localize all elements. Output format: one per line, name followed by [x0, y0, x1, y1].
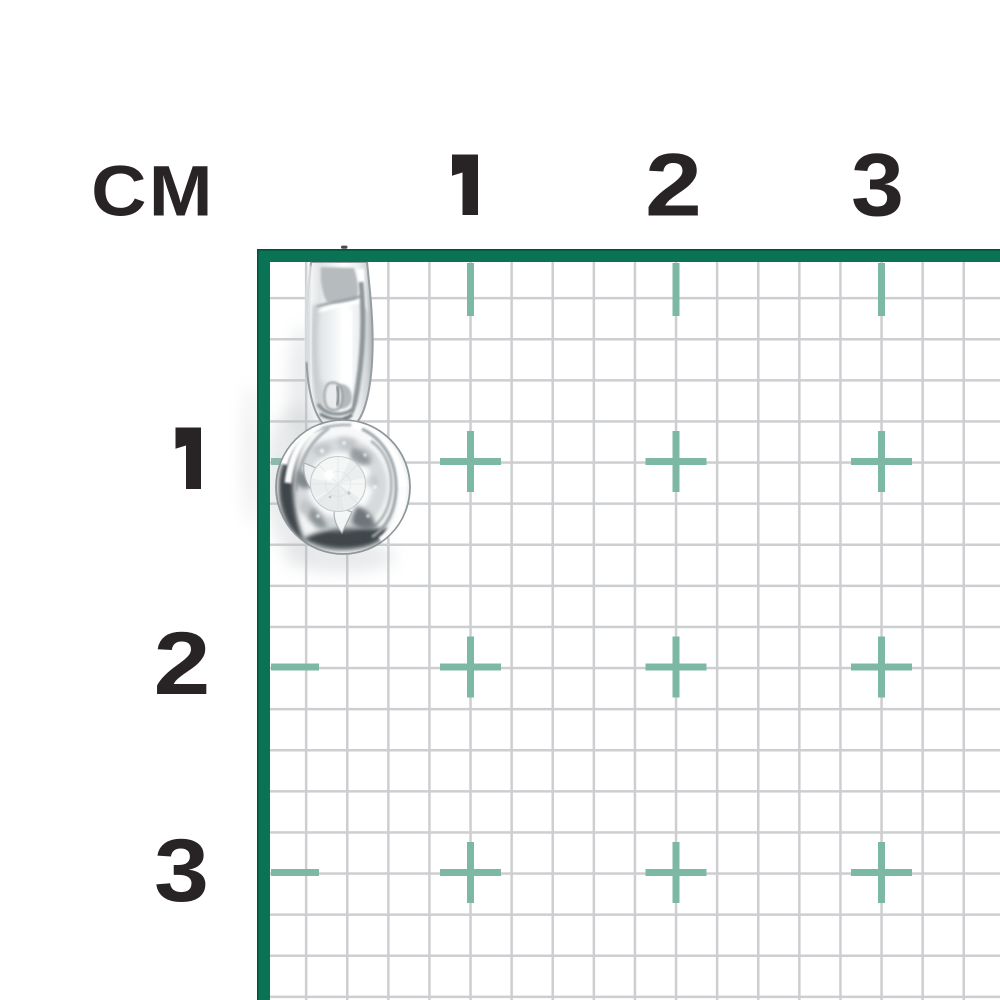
svg-text:2: 2: [645, 136, 702, 235]
svg-text:2: 2: [154, 614, 211, 713]
svg-text:3: 3: [851, 135, 904, 234]
svg-text:3: 3: [154, 821, 209, 920]
svg-text:СМ: СМ: [91, 151, 216, 231]
